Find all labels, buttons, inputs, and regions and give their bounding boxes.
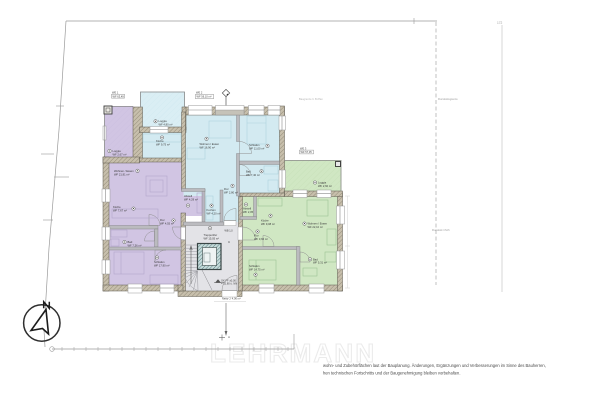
svg-text:Flurstücksgrenze: Flurstücksgrenze — [438, 97, 458, 101]
svg-text:Baugrenze lt. B-Plan: Baugrenze lt. B-Plan — [299, 97, 323, 101]
svg-text:WF 63,49: WF 63,49 — [113, 94, 125, 98]
svg-text:WF 4,29 m²: WF 4,29 m² — [184, 197, 198, 201]
svg-text:WF 5,31 m²: WF 5,31 m² — [313, 261, 327, 265]
svg-text:WF 9,08 m²: WF 9,08 m² — [261, 222, 275, 226]
svg-text:Flurstück 172/1: Flurstück 172/1 — [432, 228, 450, 232]
svg-text:WF 2,60 m²: WF 2,60 m² — [318, 184, 332, 188]
svg-text:WF 3,66 m²: WF 3,66 m² — [254, 237, 268, 241]
svg-text:WF 7,67 m²: WF 7,67 m² — [113, 208, 127, 212]
svg-text:A: A — [228, 335, 230, 339]
svg-text:WF 2,67 m²: WF 2,67 m² — [113, 152, 127, 156]
svg-text:WF 57,35: WF 57,35 — [301, 150, 313, 154]
svg-text:WE 2: WE 2 — [196, 91, 203, 95]
svg-text:WE 1: WE 1 — [112, 91, 119, 95]
svg-text:WF 56,10 m²: WF 56,10 m² — [197, 95, 212, 99]
svg-text:= 32,80 ü. NN: = 32,80 ü. NN — [221, 282, 237, 286]
svg-text:172: 172 — [497, 21, 503, 25]
svg-text:WB 1,0: WB 1,0 — [225, 230, 234, 233]
svg-text:hen technischen Fortschritts u: hen technischen Fortschritts und der Bau… — [323, 371, 460, 376]
svg-text:Netto-J. 4,06 m²: Netto-J. 4,06 m² — [222, 297, 241, 301]
svg-text:WF 7,36 m²: WF 7,36 m² — [128, 243, 142, 247]
svg-text:WF 11,00 m²: WF 11,00 m² — [249, 146, 264, 150]
svg-text:WF 17,90 m²: WF 17,90 m² — [154, 263, 170, 267]
svg-text:WF 2,05: WF 2,05 — [243, 210, 254, 214]
svg-text:WF 15,05 m²: WF 15,05 m² — [204, 236, 220, 240]
svg-text:WF 16,90 m²: WF 16,90 m² — [200, 145, 216, 149]
svg-text:WF 2,80 m²: WF 2,80 m² — [224, 190, 238, 194]
svg-text:WF 21,91 m²: WF 21,91 m² — [114, 172, 130, 176]
svg-text:WF 4,80 m²: WF 4,80 m² — [159, 122, 173, 126]
svg-text:WF 14,75 m²: WF 14,75 m² — [249, 267, 265, 271]
svg-text:WF 4,20 m²: WF 4,20 m² — [207, 211, 221, 215]
svg-text:WE 3: WE 3 — [300, 147, 307, 151]
svg-text:WF 9,75 m²: WF 9,75 m² — [156, 142, 170, 146]
svg-text:wohn- und Zubehörflächen laut: wohn- und Zubehörflächen laut der Baupla… — [323, 363, 546, 368]
svg-text:WF 4,55 m²: WF 4,55 m² — [160, 221, 174, 225]
svg-text:WF 7,40 m²: WF 7,40 m² — [246, 173, 260, 177]
svg-text:WF 22,10 m²: WF 22,10 m² — [308, 225, 324, 229]
